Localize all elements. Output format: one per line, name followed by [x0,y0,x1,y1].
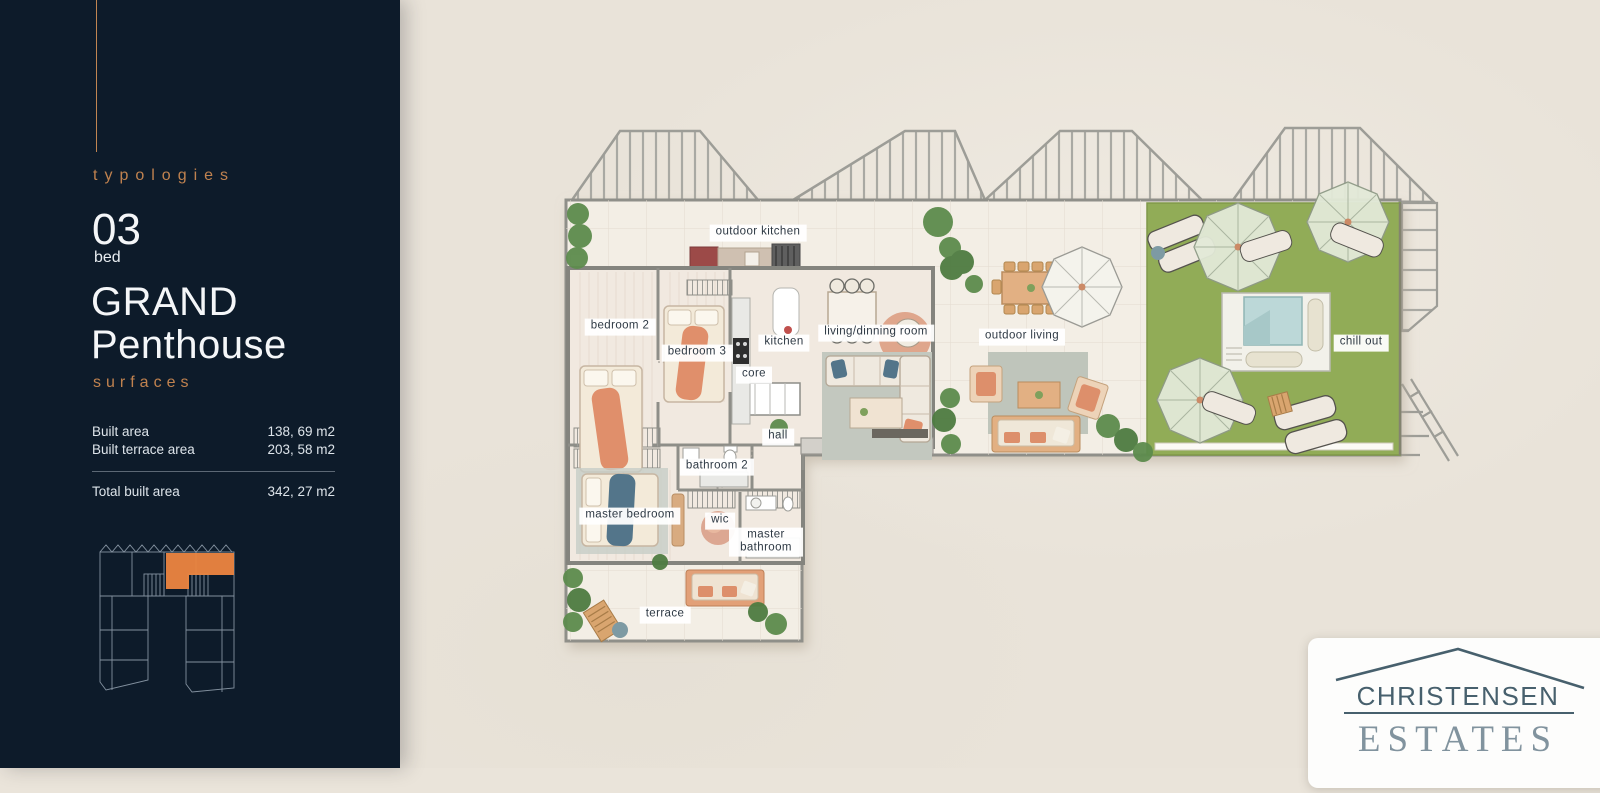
surfaces-section-label: surfaces [93,374,193,392]
cooktop [733,338,749,364]
room-label-chill-out: chill out [1334,335,1389,352]
parasol-white [1042,247,1122,327]
room-label-kitchen: kitchen [758,335,809,352]
building-keyplan [92,540,242,696]
logo-line1: CHRISTENSEN [1357,681,1560,711]
room-label-outdoor-living: outdoor living [979,329,1065,346]
terrace-sofa [686,570,764,606]
accent-vertical-line [96,0,97,152]
surface-value: 203, 58 m2 [267,443,335,457]
title-line-1: GRAND [91,280,238,324]
table-row: Built terrace area 203, 58 m2 [92,443,335,457]
room-label-bathroom-2: bathroom 2 [680,459,754,476]
unit-bed-label: bed [94,249,121,267]
pergola-roof-frames [572,128,1434,202]
room-label-master-bedroom: master bedroom [579,508,680,525]
parasol-lawn-2 [1307,182,1389,262]
table-row-total: Total built area 342, 27 m2 [92,485,335,499]
logo-line2: ESTATES [1358,719,1558,760]
room-label-outdoor-kitchen: outdoor kitchen [710,225,807,242]
table-divider [92,471,335,472]
brand-logo-card: CHRISTENSEN ESTATES [1308,638,1600,788]
outdoor-sofa [992,416,1080,452]
pergola-side-band [1400,203,1458,461]
keyplan-scallops [100,545,232,552]
typologies-eyebrow: typologies [93,167,235,185]
surface-value: 138, 69 m2 [267,425,335,439]
brand-logo: CHRISTENSEN ESTATES [1308,638,1600,788]
surface-total-value: 342, 27 m2 [267,485,335,499]
terrace-side-table [612,622,628,638]
room-label-bedroom-2: bedroom 2 [585,319,656,336]
sidebar: typologies 03 bed GRAND Penthouse surfac… [0,0,400,768]
surface-total-label: Total built area [92,485,180,499]
unit-number: 03 [92,208,141,252]
room-label-living-dinning: living/dinning room [818,325,934,342]
page-title: GRAND Penthouse [91,281,287,367]
bed-bedroom-2 [580,366,642,472]
room-label-core: core [736,367,772,384]
surface-label: Built terrace area [92,443,195,457]
room-label-master-bathroom: master bathroom [729,528,803,557]
side-table-round [1151,246,1165,260]
coffee-table [850,398,902,428]
tv-console [872,429,928,438]
room-label-bedroom-3: bedroom 3 [662,345,733,362]
room-label-terrace: terrace [640,607,691,624]
slat-table [1268,392,1292,416]
title-line-2: Penthouse [91,323,287,367]
side-ladder [1400,379,1458,461]
surface-label: Built area [92,425,149,439]
lawn-edge-strip [1155,443,1393,450]
surfaces-table: Built area 138, 69 m2 Built terrace area… [92,425,335,504]
table-row: Built area 138, 69 m2 [92,425,335,439]
room-label-hall: hall [762,429,794,446]
plunge-pool-deck [1222,293,1330,371]
